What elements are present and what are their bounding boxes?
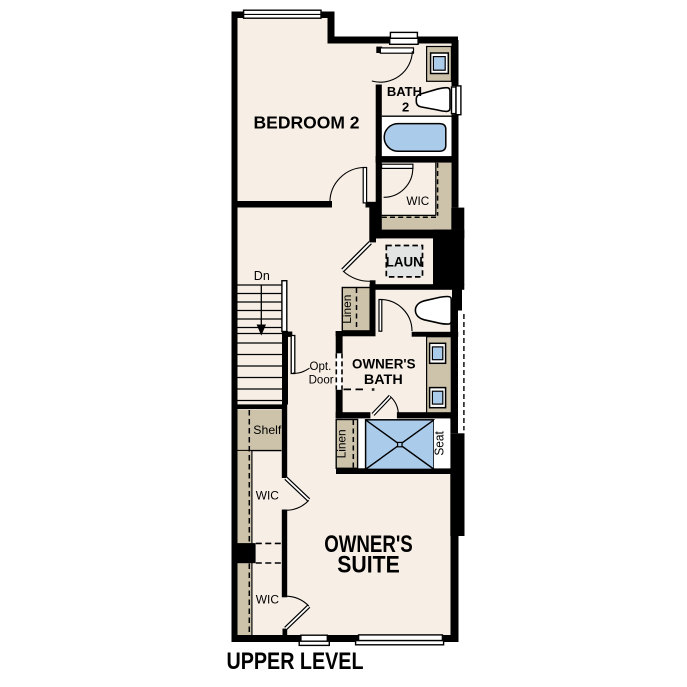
svg-text:Opt.: Opt.: [310, 361, 332, 373]
svg-text:WIC: WIC: [256, 592, 279, 606]
svg-text:Shelf: Shelf: [253, 423, 282, 437]
svg-text:Dn: Dn: [254, 269, 270, 283]
svg-text:WIC: WIC: [406, 194, 429, 208]
svg-text:WIC: WIC: [256, 489, 279, 503]
svg-text:Linen: Linen: [340, 295, 354, 324]
svg-text:BATH: BATH: [364, 372, 403, 387]
svg-text:2: 2: [402, 100, 409, 115]
svg-text:Linen: Linen: [335, 429, 349, 458]
svg-text:OWNER'S: OWNER'S: [352, 357, 416, 372]
svg-text:Seat: Seat: [431, 431, 446, 456]
svg-text:BATH: BATH: [387, 84, 422, 99]
svg-text:SUITE: SUITE: [337, 552, 400, 579]
svg-text:Door: Door: [309, 374, 334, 386]
svg-text:BEDROOM 2: BEDROOM 2: [254, 113, 360, 133]
svg-text:UPPER LEVEL: UPPER LEVEL: [227, 648, 364, 675]
svg-text:LAUN: LAUN: [386, 255, 423, 270]
